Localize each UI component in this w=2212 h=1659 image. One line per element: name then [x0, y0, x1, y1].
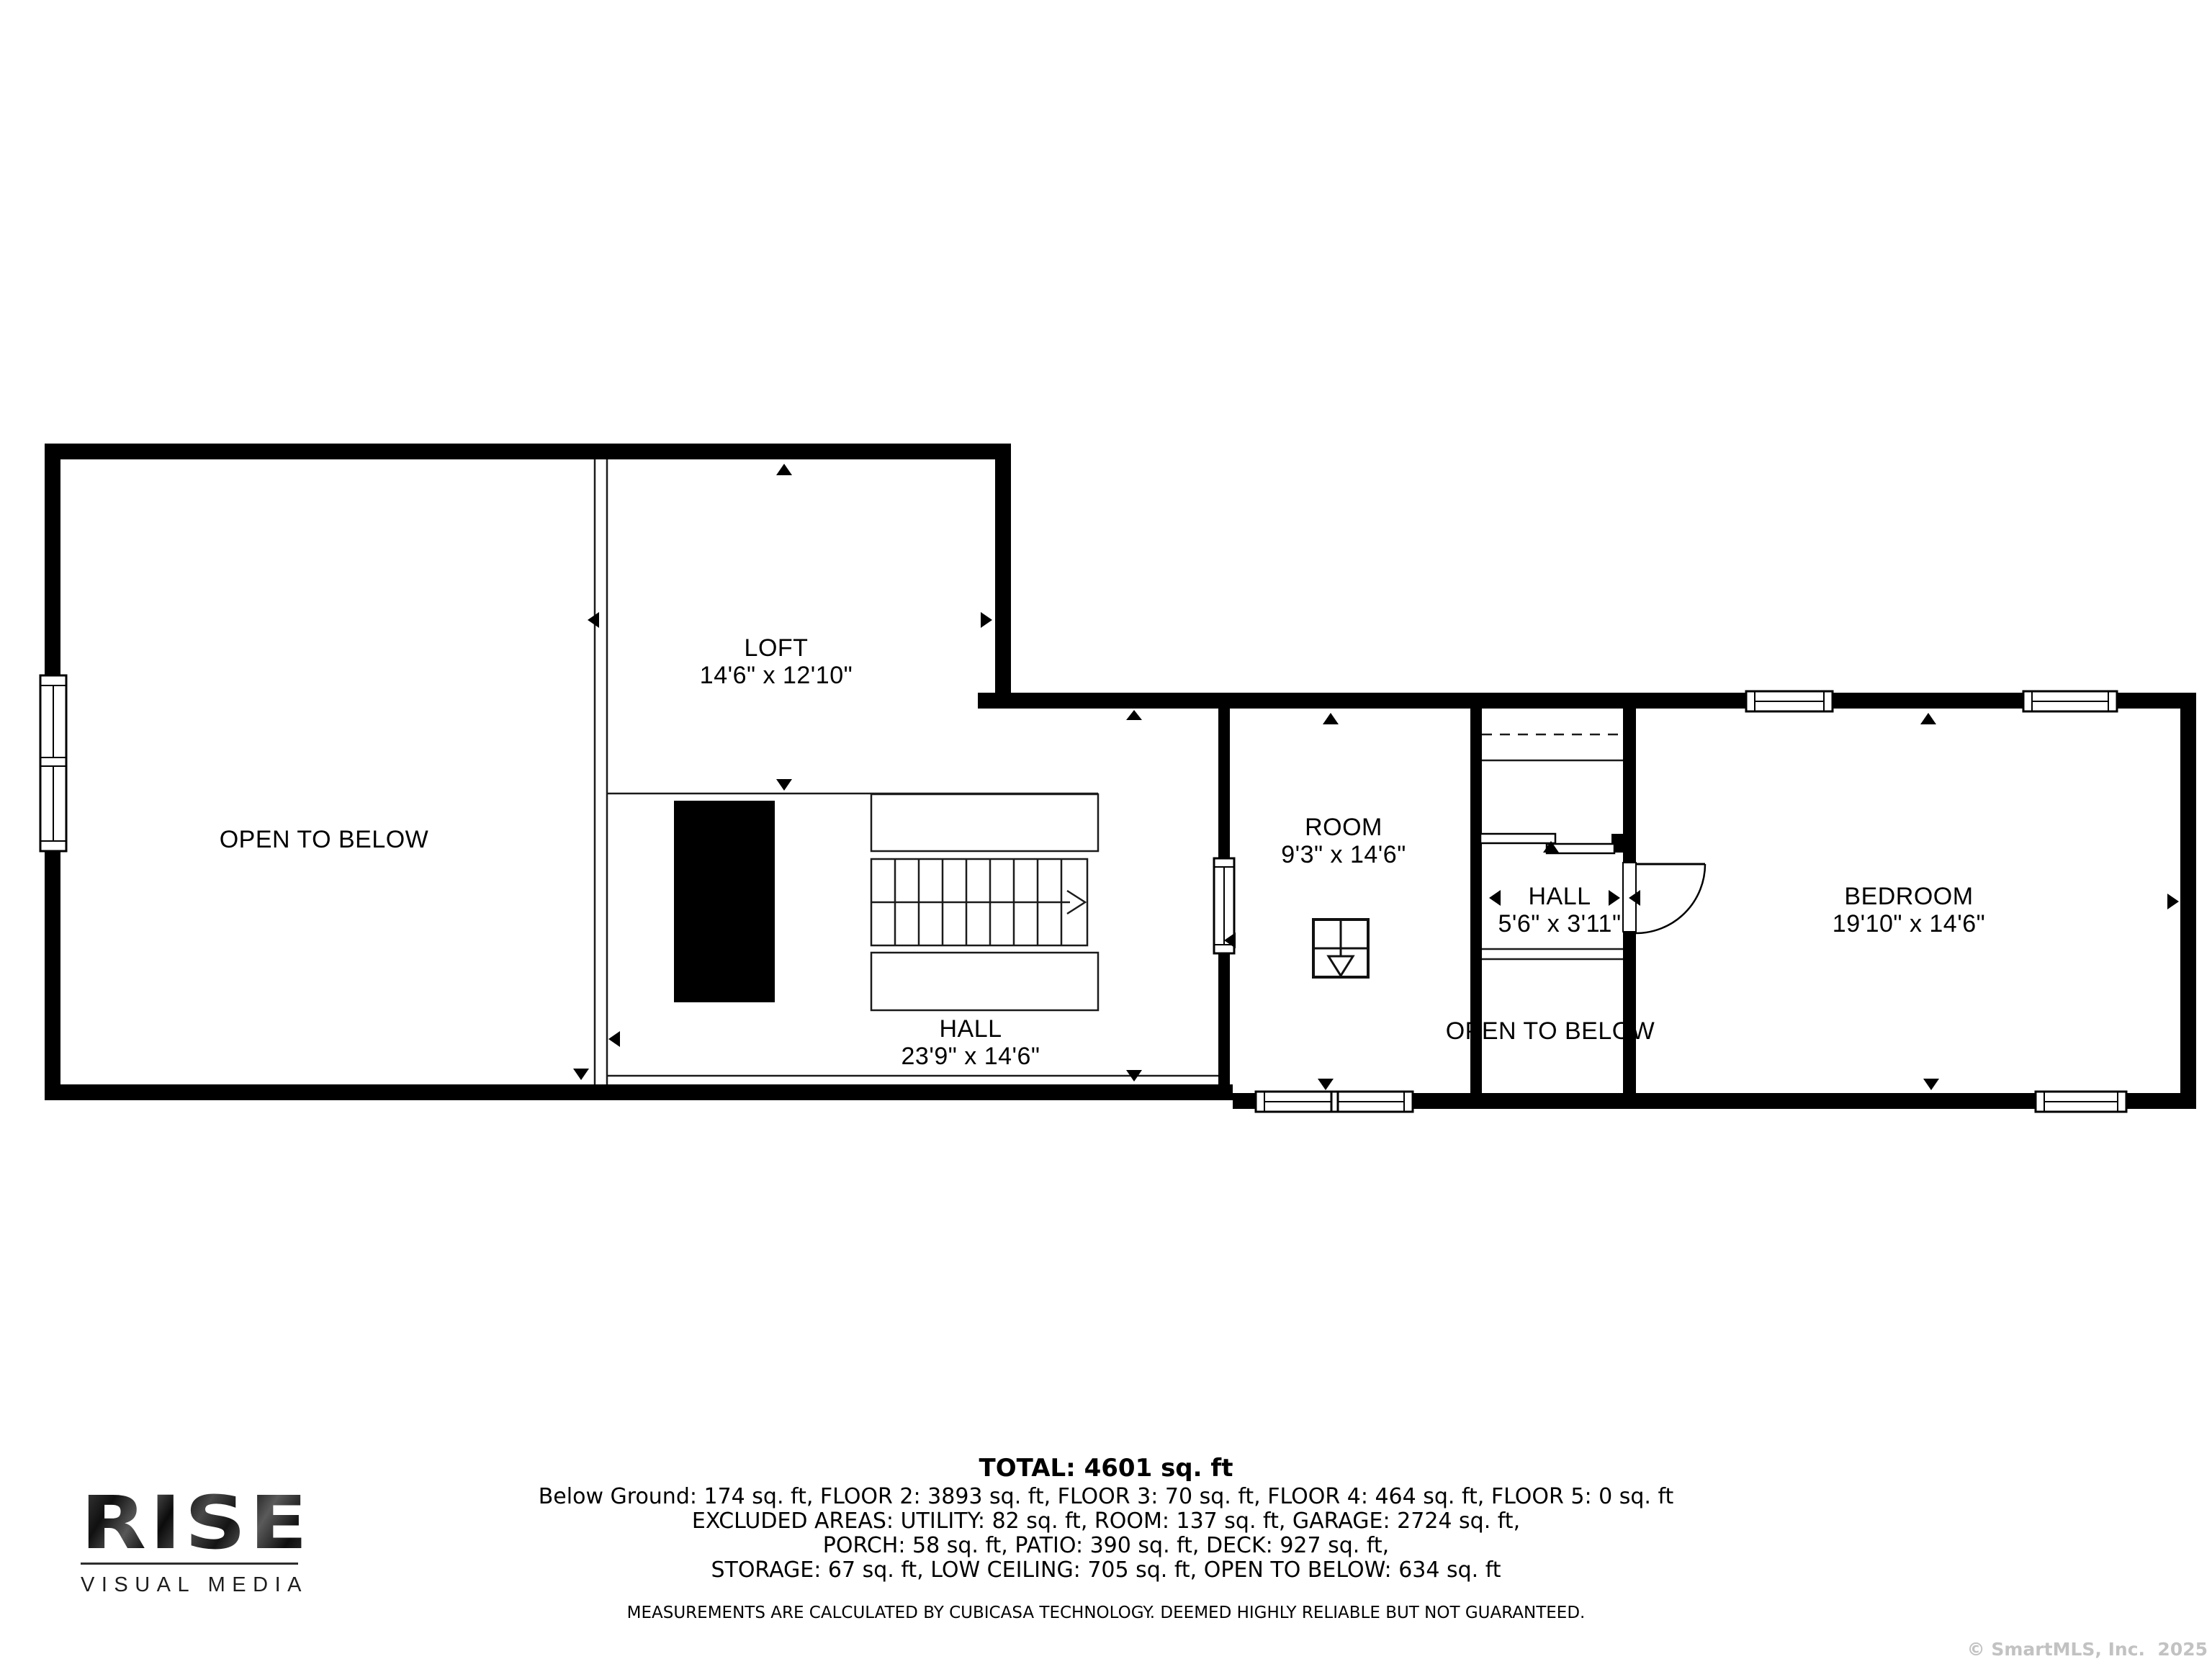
walls: [45, 444, 2196, 1109]
window-bottom-double: [1256, 1092, 1413, 1112]
door-swing-arc: [1636, 864, 1705, 933]
room-dims: 5'6" x 3'11": [1498, 910, 1621, 938]
staircase: [871, 794, 1098, 1010]
marker-loft-bottom: [776, 779, 792, 791]
marker-closet: [1543, 841, 1559, 853]
measurement-summary: TOTAL: 4601 sq. ft Below Ground: 174 sq.…: [0, 1456, 2212, 1622]
marker-room-bottom: [1318, 1079, 1334, 1090]
windows: [40, 675, 2126, 1112]
copyright-notice: © SmartMLS, Inc. 2025: [1967, 1639, 2208, 1659]
total-area: TOTAL: 4601 sq. ft: [0, 1456, 2212, 1480]
logo-wordmark: RISE: [81, 1491, 311, 1557]
room-name: LOFT: [745, 634, 809, 662]
label-room: ROOM 9'3" x 14'6": [1281, 814, 1406, 868]
marker-loft-left: [588, 612, 599, 628]
room-name: OPEN TO BELOW: [1446, 1017, 1655, 1045]
label-loft: LOFT 14'6" x 12'10": [700, 634, 853, 689]
room-dims: 23'9" x 14'6": [902, 1043, 1040, 1070]
floor-plan-page: LOFT 14'6" x 12'10" OPEN TO BELOW HALL 2…: [0, 0, 2212, 1659]
thin-lines: [595, 459, 1623, 1084]
room-name: HALL: [1528, 883, 1591, 910]
label-hall-small: HALL 5'6" x 3'11": [1498, 883, 1621, 938]
marker-hall-bottom-left: [573, 1069, 589, 1080]
excluded-line-3: STORAGE: 67 sq. ft, LOW CEILING: 705 sq.…: [0, 1558, 2212, 1583]
marker-room-window: [1224, 932, 1236, 948]
label-open-to-below-main: OPEN TO BELOW: [220, 826, 429, 853]
room-name: ROOM: [1305, 814, 1382, 841]
room-dims: 14'6" x 12'10": [700, 662, 853, 689]
rise-visual-media-logo: RISE VISUAL MEDIA: [81, 1491, 311, 1597]
bedroom-door: [1623, 863, 1705, 933]
marker-mid-bottom: [1126, 1070, 1142, 1082]
excluded-line-2: PORCH: 58 sq. ft, PATIO: 390 sq. ft, DEC…: [0, 1534, 2212, 1558]
stair-lower-landing: [871, 953, 1098, 1010]
room-name: OPEN TO BELOW: [220, 826, 429, 853]
down-arrow-outline: [1328, 956, 1353, 976]
marker-hall-left: [608, 1031, 620, 1047]
window-top-b: [2023, 691, 2117, 711]
window-bottom-single: [2036, 1092, 2126, 1112]
floors-line: Below Ground: 174 sq. ft, FLOOR 2: 3893 …: [0, 1485, 2212, 1509]
sliding-door: [1480, 834, 1614, 853]
room-dims: 9'3" x 14'6": [1281, 841, 1406, 868]
window-top-a: [1746, 691, 1833, 711]
marker-mid-top: [1126, 710, 1142, 720]
marker-loft-top: [776, 464, 792, 475]
marker-bedroom-top: [1920, 713, 1936, 724]
marker-bedroom-right: [2167, 894, 2179, 909]
label-bedroom: BEDROOM 19'10" x 14'6": [1833, 883, 1985, 938]
logo-tagline: VISUAL MEDIA: [81, 1573, 311, 1597]
room-name: HALL: [939, 1015, 1002, 1043]
excluded-line-1: EXCLUDED AREAS: UTILITY: 82 sq. ft, ROOM…: [0, 1509, 2212, 1534]
marker-loft-right: [981, 612, 992, 628]
marker-bedroom-bottom: [1923, 1079, 1939, 1090]
label-hall-main: HALL 23'9" x 14'6": [902, 1015, 1040, 1070]
stair-upper-landing: [871, 794, 1098, 851]
label-open-to-below-small: OPEN TO BELOW: [1446, 1017, 1655, 1045]
marker-door-right: [1629, 890, 1640, 906]
stair-direction-arrow: [1067, 891, 1085, 914]
disclaimer: MEASUREMENTS ARE CALCULATED BY CUBICASA …: [0, 1604, 2212, 1622]
window-room-interior: [1214, 858, 1234, 953]
room-dims: 19'10" x 14'6": [1833, 910, 1985, 938]
marker-arrows: [573, 464, 2179, 1090]
skylight-symbol: [1313, 920, 1368, 977]
room-name: BEDROOM: [1844, 883, 1973, 910]
stair-treads-box: [871, 859, 1087, 945]
marker-room-top: [1323, 713, 1339, 724]
window-left-wall: [40, 675, 66, 851]
